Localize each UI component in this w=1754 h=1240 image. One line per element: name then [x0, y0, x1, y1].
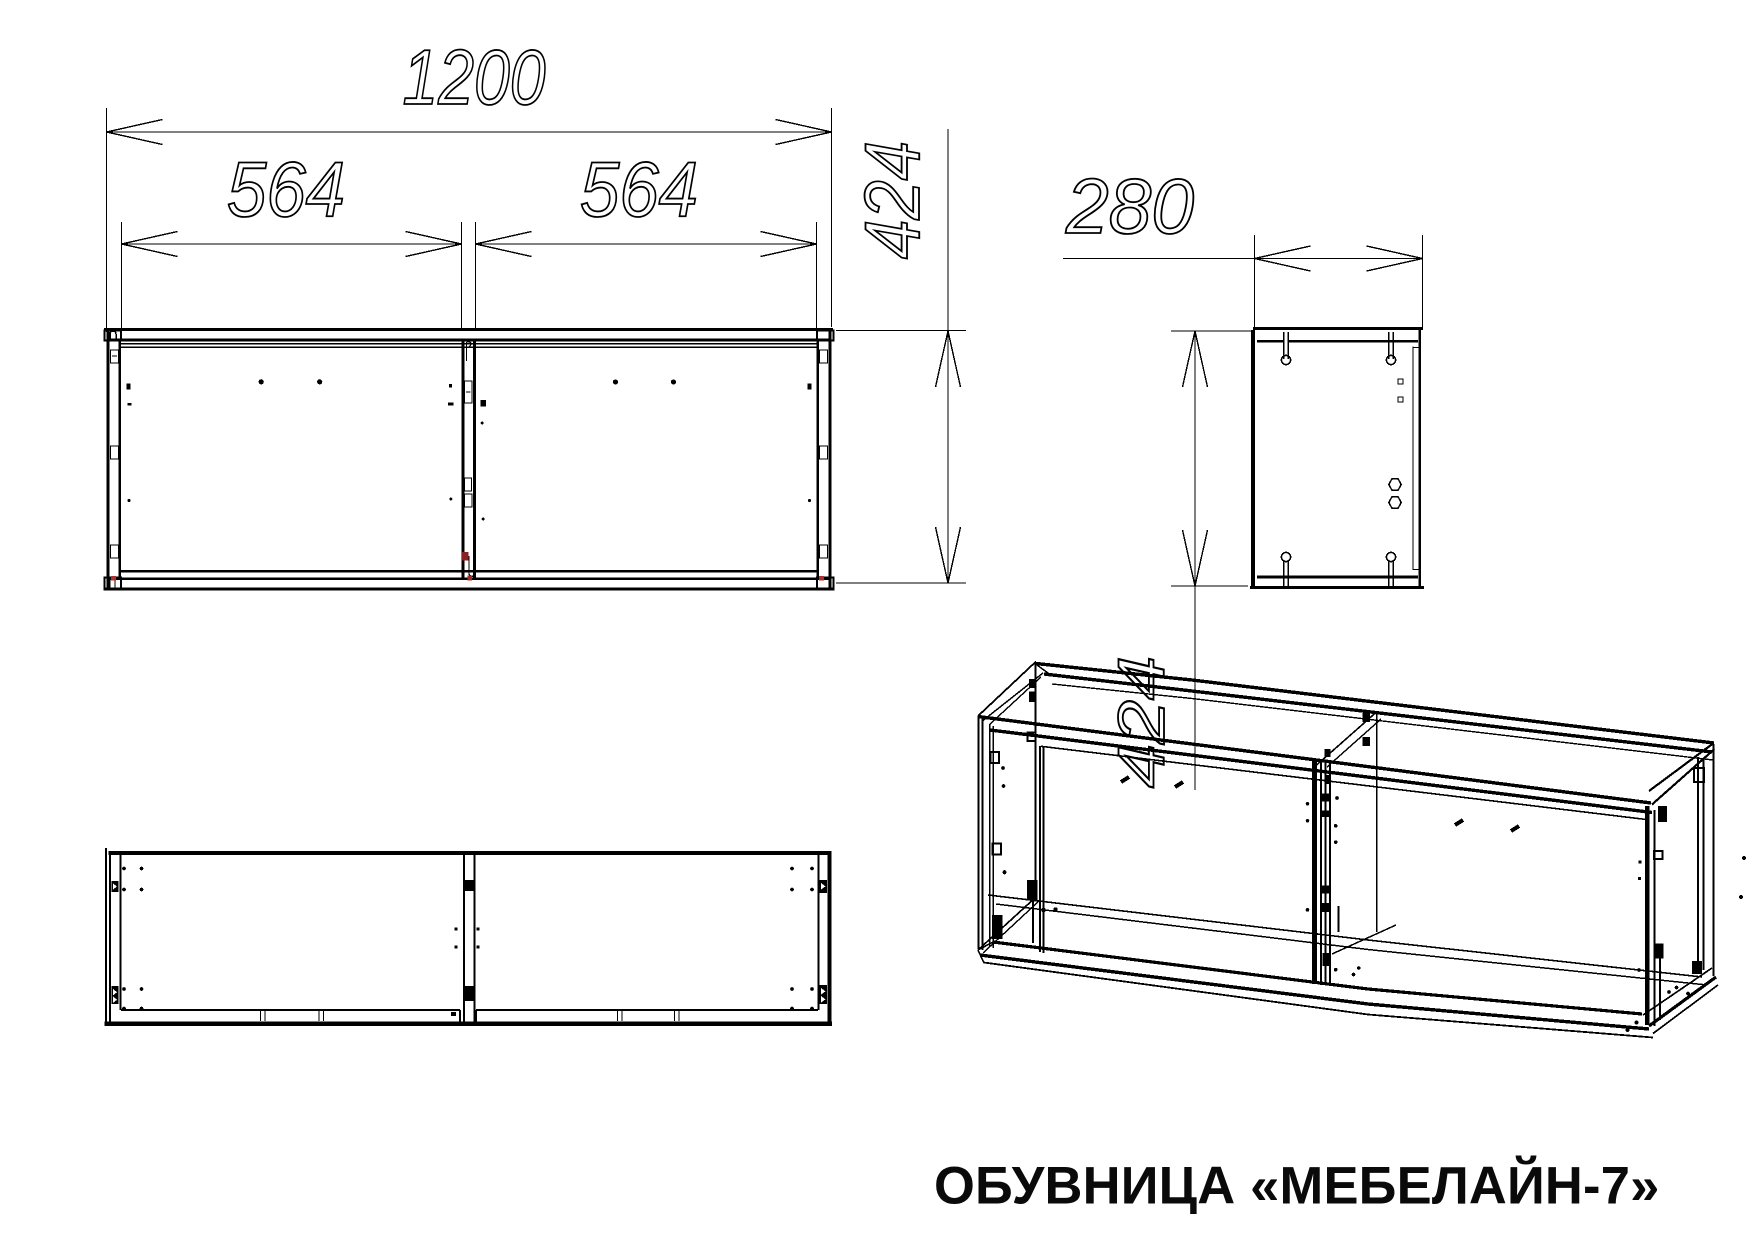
svg-text:564: 564 [580, 145, 698, 233]
svg-text:ОБУВНИЦА «МЕБЕЛАЙН-7»: ОБУВНИЦА «МЕБЕЛАЙН-7» [934, 1157, 1660, 1216]
svg-text:1200: 1200 [403, 33, 546, 121]
svg-text:280: 280 [1065, 162, 1194, 250]
svg-text:424: 424 [848, 141, 936, 259]
svg-text:564: 564 [227, 145, 345, 233]
